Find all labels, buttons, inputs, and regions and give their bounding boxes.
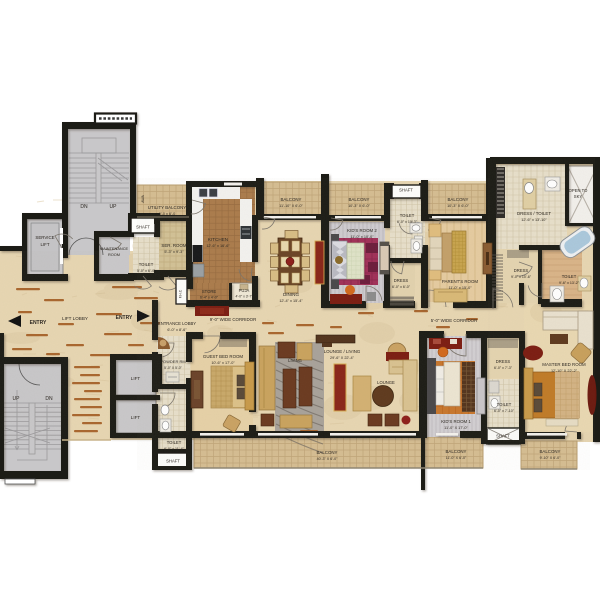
svg-text:MAINTENANCE: MAINTENANCE [100,246,129,251]
svg-text:SERVICE: SERVICE [35,235,54,240]
svg-text:UP: UP [110,204,118,210]
svg-text:LIFT: LIFT [40,242,49,247]
svg-text:DN: DN [80,204,88,210]
